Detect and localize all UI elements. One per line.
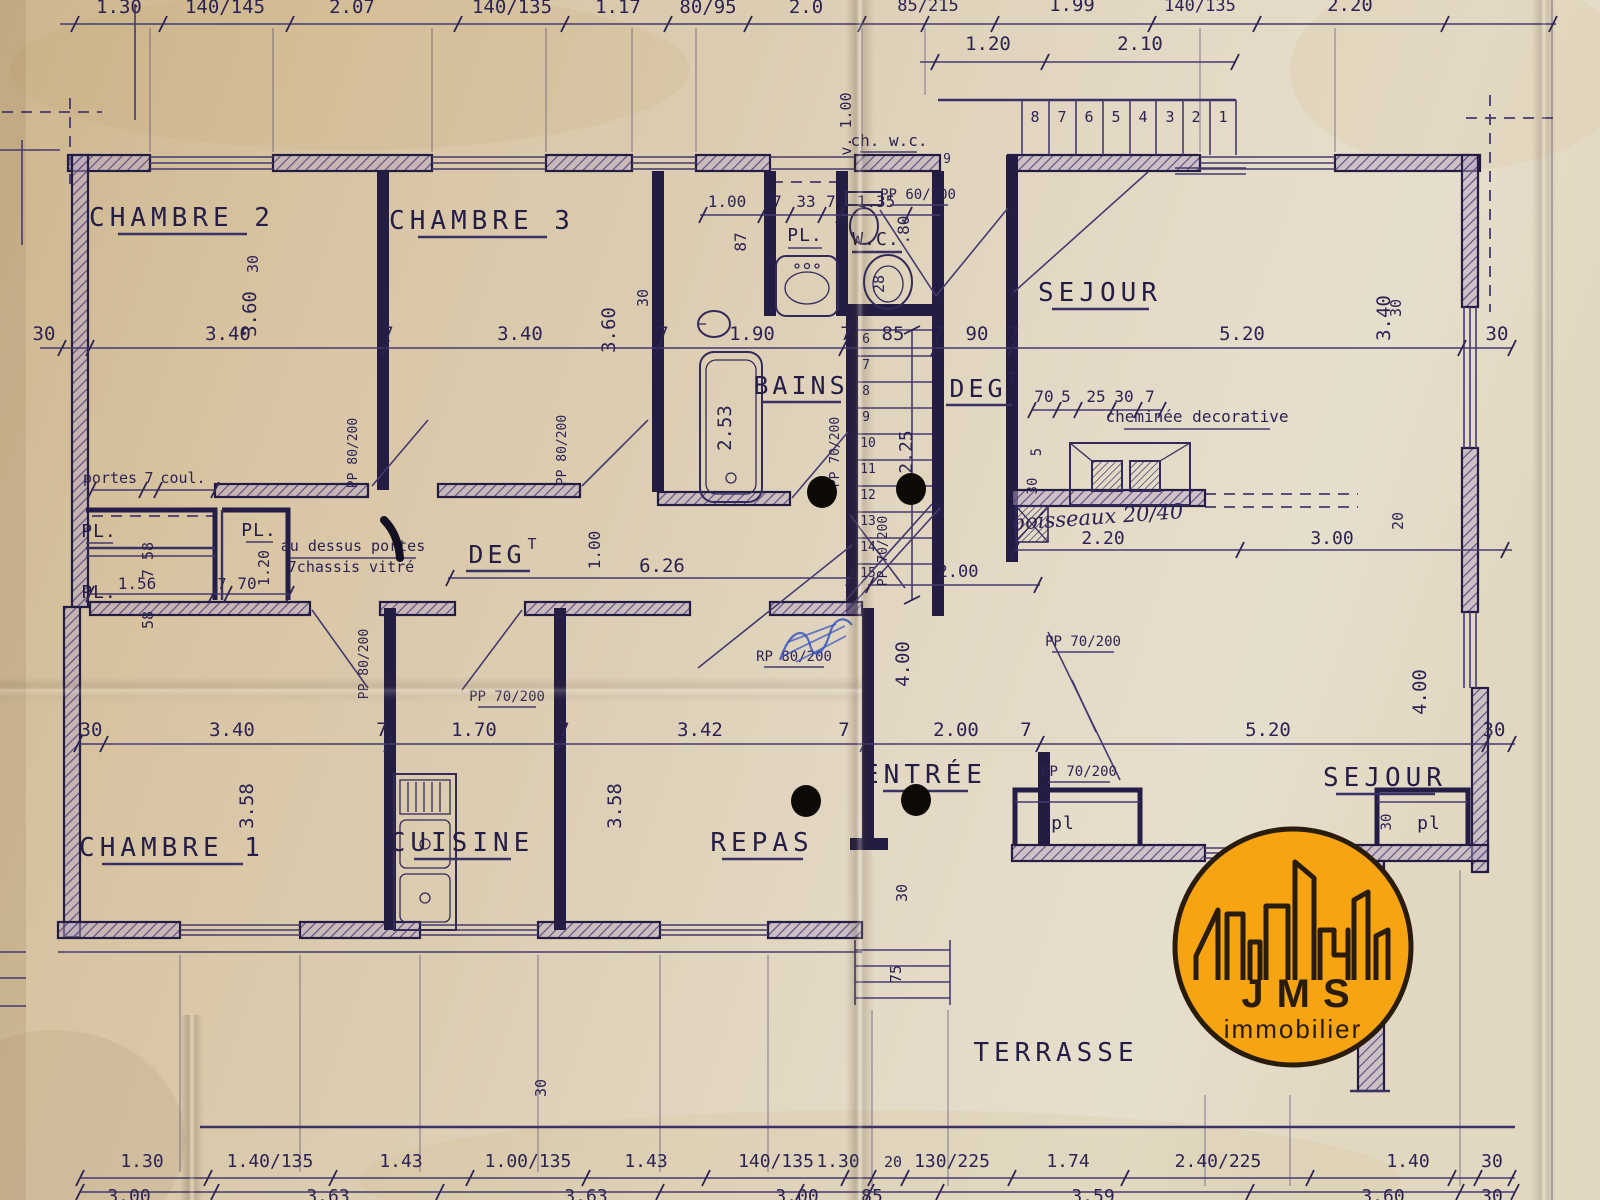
- dim-label: 5: [1061, 387, 1071, 406]
- door-label: PP 60/200: [880, 187, 956, 203]
- room-label-pl: PL.: [81, 521, 117, 542]
- dim-label: 3.42: [677, 719, 723, 741]
- dim-label: 4.00: [1409, 669, 1431, 715]
- room-label-cuisine: CUISINE: [390, 828, 535, 858]
- note-cheminee: cheminée decorative: [1105, 407, 1288, 426]
- stair-number: 5: [1111, 108, 1120, 126]
- dim-label: 30: [532, 1079, 550, 1097]
- stair-number: 2: [1191, 108, 1200, 126]
- room-label-chambre2: CHAMBRE 2: [89, 203, 275, 233]
- dim-label: 3.60: [239, 291, 261, 337]
- dim-label: 3.00: [775, 1186, 818, 1200]
- dim-label: 70: [237, 574, 256, 593]
- dim-label: 30: [893, 884, 911, 902]
- dim-label: 1.99: [1049, 0, 1095, 16]
- dim-label: 75: [887, 965, 905, 983]
- dim-label: 3.59: [1071, 1186, 1114, 1200]
- stair-number: 8: [1030, 108, 1039, 126]
- dim-label: 30: [1486, 323, 1509, 345]
- dim-label: 3.63: [564, 1186, 607, 1200]
- dim-label: 30: [1387, 299, 1405, 317]
- dim-label: 7: [657, 323, 668, 345]
- dim-label: 2.0: [789, 0, 823, 18]
- dim-label: 70: [1034, 387, 1053, 406]
- stair-number: 4: [1138, 108, 1147, 126]
- dim-label: 3.00: [1310, 528, 1353, 549]
- dim-label: 30: [1481, 1186, 1503, 1200]
- room-label-sejour-haut: SEJOUR: [1038, 278, 1162, 308]
- dim-label: 2.20: [1081, 528, 1124, 549]
- dim-label: 30: [1483, 719, 1506, 741]
- dim-label: 7: [1008, 323, 1019, 345]
- door-label: PP 70/200: [876, 516, 891, 586]
- room-label-chambre1: CHAMBRE 1: [79, 833, 265, 863]
- scanned-floorplan: 1.30 140/145 2.07 140/135 1.17 80/95 2.0…: [0, 0, 1600, 1200]
- dim-label: 1.43: [379, 1151, 422, 1172]
- dim-label: 7: [1020, 719, 1031, 741]
- dim-label: 1.20: [965, 33, 1011, 55]
- note-coul: coul.: [160, 469, 205, 487]
- room-label-pl-haut: PL.: [787, 225, 823, 246]
- dim-label: 30: [1481, 1151, 1503, 1172]
- dim-label: 90: [966, 323, 989, 345]
- dim-label: 30: [244, 255, 262, 273]
- dim-label: 1.00: [585, 531, 604, 570]
- dim-label: 1.74: [1046, 1151, 1089, 1172]
- dim-label: 140/135: [1164, 0, 1236, 16]
- door-label: PP 80/200: [555, 415, 570, 485]
- stair-number: 7: [1057, 108, 1066, 126]
- dim-label: 30: [1379, 814, 1395, 831]
- jms-logo: JMS immobilier: [1175, 829, 1411, 1065]
- dim-label: 130/225: [914, 1151, 990, 1172]
- dim-label: 1.17: [595, 0, 641, 18]
- dim-label: 30: [1025, 478, 1041, 495]
- dim-label: 5.20: [1245, 719, 1291, 741]
- dim-label: 7 58: [139, 542, 157, 578]
- dim-label: 3.60: [598, 307, 620, 353]
- dim-label: 140/145: [185, 0, 265, 18]
- floorplan-canvas: 1.30 140/145 2.07 140/135 1.17 80/95 2.0…: [0, 0, 1600, 1200]
- dim-label: 1.00: [708, 192, 747, 211]
- dim-label: 7: [558, 719, 569, 741]
- dim-label: 1.30: [120, 1151, 163, 1172]
- logo-text: JMS: [1241, 972, 1362, 1016]
- dim-label: 1.70: [451, 719, 497, 741]
- note-chassis: 7chassis vitré: [288, 558, 414, 576]
- dim-label: 7: [932, 323, 943, 345]
- dim-label: 6.26: [639, 555, 685, 577]
- room-label-deg-centre: DEG: [949, 374, 1006, 403]
- dim-label: 1.40: [1386, 1151, 1429, 1172]
- dim-label: 2.10: [1117, 33, 1163, 55]
- dim-label: 1.40/135: [227, 1151, 314, 1172]
- stair-number: 6: [1084, 108, 1093, 126]
- door-label: PP 70/200: [828, 417, 843, 487]
- dim-label: 140/135: [472, 0, 552, 18]
- dim-label: 2.53: [714, 405, 736, 451]
- dim-label: 85: [882, 323, 905, 345]
- room-label-deg-sup: T: [527, 535, 536, 553]
- dim-label: 2.00: [933, 719, 979, 741]
- note-portes: portes: [83, 469, 137, 487]
- dim-label: 2.40/225: [1175, 1151, 1262, 1172]
- room-label-entree: ENTRÉE: [863, 758, 987, 790]
- dim-label: 30: [33, 323, 56, 345]
- room-label-chambre3: CHAMBRE 3: [389, 206, 575, 236]
- dim-label: 1.90: [729, 323, 775, 345]
- dim-label: 3.63: [306, 1186, 349, 1200]
- dim-label: 5: [1029, 448, 1045, 456]
- room-label-placard: pl: [1051, 813, 1075, 834]
- dim-label: 85/215: [897, 0, 958, 16]
- dim-label: 30: [634, 289, 652, 307]
- dim-label: 3.58: [604, 783, 626, 829]
- room-label-placard: pl: [1417, 813, 1441, 834]
- note-au-dessus: au dessus portes: [281, 537, 426, 555]
- dim-label: 7: [1145, 387, 1155, 406]
- stair-number: 3: [1165, 108, 1174, 126]
- room-label-pl: PL.: [241, 520, 277, 541]
- door-label: PP 70/200: [1045, 634, 1121, 650]
- dim-label: 140/135: [738, 1151, 814, 1172]
- dim-label: 2.20: [1327, 0, 1373, 16]
- dim-label: 7: [772, 192, 782, 211]
- dim-label: 7: [376, 719, 387, 741]
- room-label-bains: BAINS: [753, 371, 848, 400]
- dim-label: 3.60: [1361, 1186, 1404, 1200]
- dim-label: 30: [1114, 387, 1133, 406]
- dim-label: 1.20: [255, 550, 273, 586]
- dim-label: 80/95: [679, 0, 736, 18]
- dim-label: 1.30: [96, 0, 142, 18]
- dim-label: 7: [826, 192, 836, 211]
- dim-label: 3.40: [209, 719, 255, 741]
- dim-label: 20: [884, 1153, 902, 1171]
- room-label-deg-gauche: DEG: [468, 540, 525, 569]
- dim-label: 5.20: [1219, 323, 1265, 345]
- dim-label: 1.00/135: [485, 1151, 572, 1172]
- dim-label: 2.25: [896, 430, 917, 473]
- door-label: PP 80/200: [346, 418, 361, 488]
- dim-label: 1.43: [624, 1151, 667, 1172]
- dim-label: 2.07: [329, 0, 375, 18]
- dim-label: 3.40: [497, 323, 543, 345]
- room-label-terrasse: TERRASSE: [973, 1038, 1138, 1068]
- dim-label: 20: [1389, 512, 1407, 530]
- dim-label: 2.00: [938, 562, 979, 582]
- dim-label: 58: [139, 611, 157, 629]
- room-label-deg-sup: T: [1007, 369, 1016, 387]
- dim-label: 7: [217, 575, 226, 593]
- dim-label: 33: [796, 192, 815, 211]
- dim-label: 25: [1086, 387, 1105, 406]
- room-label-sejour-bas: SEJOUR: [1323, 763, 1447, 793]
- door-label: PP 70/200: [1041, 764, 1117, 780]
- room-label-repas: REPAS: [710, 828, 813, 858]
- note-portes-ep: 7: [144, 469, 153, 487]
- stair-number: 1: [1218, 108, 1227, 126]
- dim-label: 30: [80, 719, 103, 741]
- dim-label: 87: [731, 232, 750, 251]
- dim-label: 3.00: [107, 1186, 150, 1200]
- dim-label: 3.58: [236, 783, 258, 829]
- logo-subtext: immobilier: [1224, 1014, 1362, 1044]
- dim-label: 7: [382, 323, 393, 345]
- stair-number: 9: [943, 152, 951, 167]
- dim-label: 4.00: [892, 641, 914, 687]
- room-label-pl: PL.: [81, 582, 117, 603]
